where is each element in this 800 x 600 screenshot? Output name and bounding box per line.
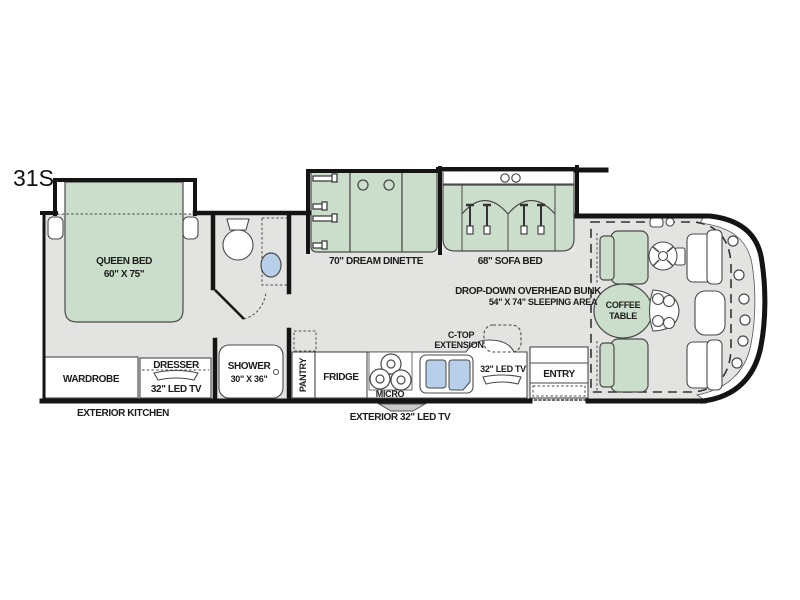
coffee-table-label-line1: COFFEE — [606, 300, 641, 310]
queen-bed-size: 60" X 75" — [104, 269, 145, 280]
pillow-right — [183, 217, 198, 239]
sofa-slide-counter — [443, 171, 574, 184]
pillow-left — [48, 217, 63, 239]
engine-console — [695, 291, 725, 335]
model-number: 31S — [13, 165, 54, 191]
ctop-label-line2: EXTENSION — [434, 340, 483, 350]
queen-bed-label: QUEEN BED — [96, 256, 152, 267]
sofa-label: 68" SOFA BED — [478, 256, 543, 267]
dinette-bench-left — [311, 172, 350, 252]
exterior-kitchen-label: EXTERIOR KITCHEN — [77, 408, 169, 419]
wardrobe-label: WARDROBE — [63, 374, 120, 385]
passenger-seat — [687, 340, 722, 390]
exterior-tv-label: EXTERIOR 32" LED TV — [350, 412, 451, 423]
bathroom-sink-icon — [261, 253, 281, 277]
queen-bed-mattress — [65, 182, 183, 322]
bunk-label-line2: 54" X 74" SLEEPING AREA — [489, 297, 598, 307]
sofa-bed — [443, 171, 574, 251]
ctop-label-line1: C-TOP — [448, 330, 475, 340]
shower-size-label: 30" X 36" — [231, 374, 268, 384]
fridge-label: FRIDGE — [323, 372, 359, 383]
bunk-label-line1: DROP-DOWN OVERHEAD BUNK — [455, 286, 602, 297]
stove-burners-icon — [369, 352, 412, 390]
kitchen-tv-label: 32" LED TV — [480, 364, 526, 374]
dashboard — [650, 218, 674, 227]
rv-floorplan: 31S QUEEN BED 60" X 75" 70" DREAM DINETT… — [0, 0, 800, 600]
coffee-table-label-line2: TABLE — [609, 311, 637, 321]
captain-chair-rear — [597, 231, 648, 284]
exterior-tv-icon — [379, 404, 425, 411]
dinette-bench-right — [402, 172, 437, 252]
dream-dinette — [311, 172, 437, 252]
shower-label: SHOWER — [228, 361, 272, 372]
entry-label: ENTRY — [543, 369, 575, 380]
dresser-tv-label: 32" LED TV — [151, 384, 202, 395]
dinette-label: 70" DREAM DINETTE — [329, 256, 424, 267]
captain-chair-front — [597, 339, 648, 392]
micro-label: MICRO — [376, 389, 405, 399]
queen-bed — [48, 182, 198, 322]
dresser-label: DRESSER — [153, 360, 200, 371]
kitchen-sink-icon — [420, 355, 473, 393]
floorplan-page: 31S QUEEN BED 60" X 75" 70" DREAM DINETT… — [0, 0, 800, 600]
driver-seat — [687, 230, 722, 284]
pantry-label: PANTRY — [298, 358, 308, 392]
